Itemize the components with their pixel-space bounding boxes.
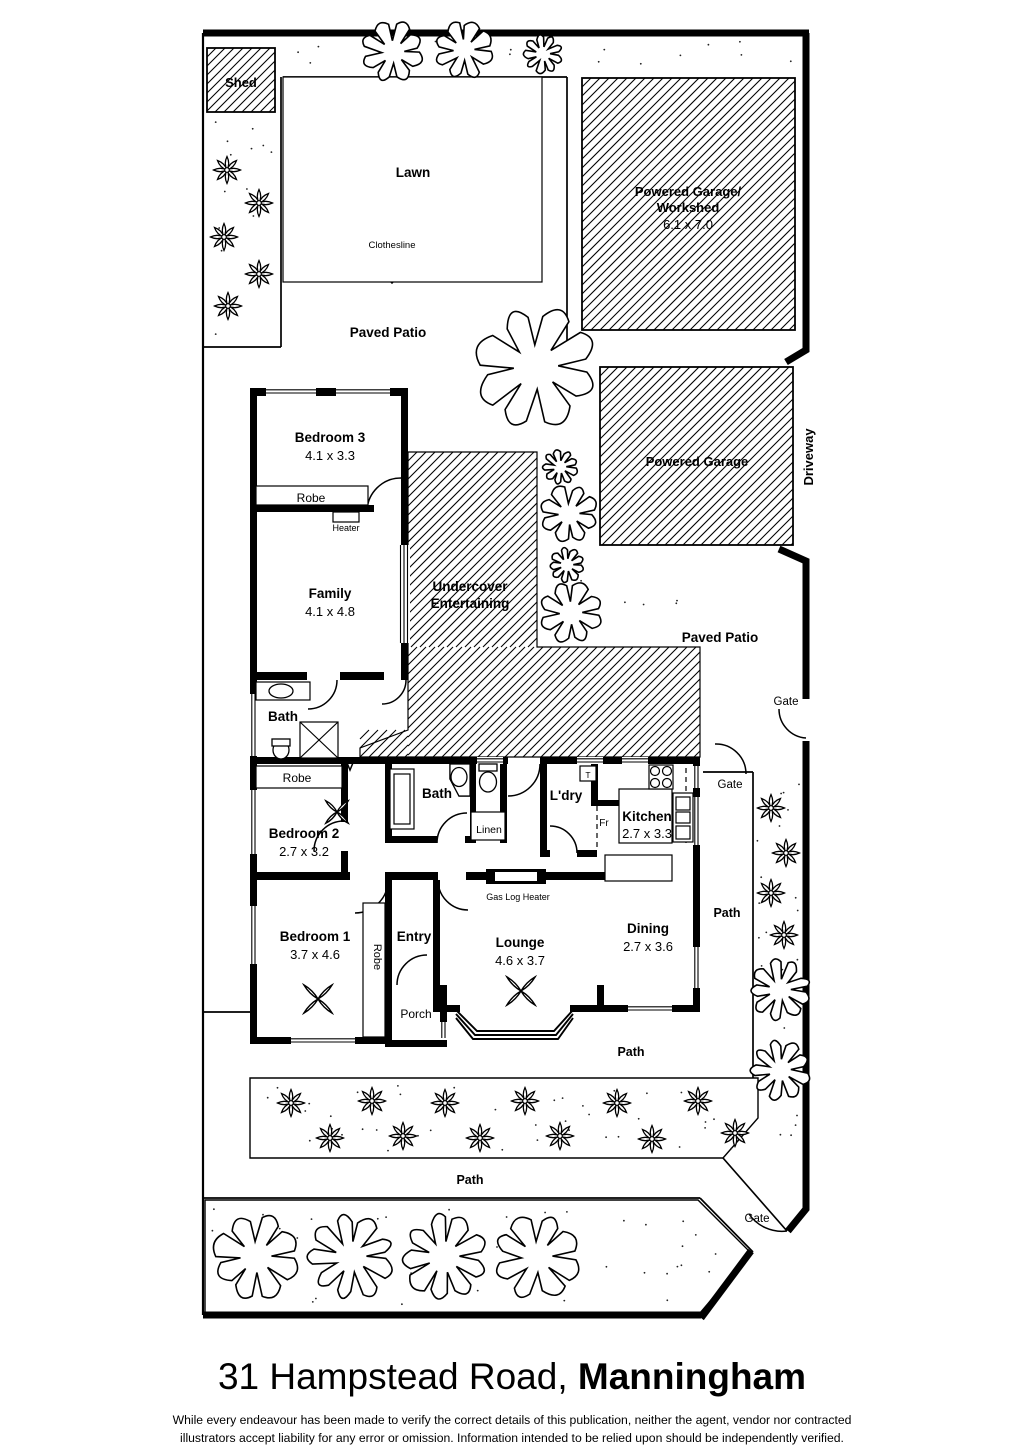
label-bedroom1-dims: 3.7 x 4.6 [290,947,340,962]
disclaimer-line1: While every endeavour has been made to v… [173,1413,852,1427]
label-bedroom3-name: Bedroom 3 [295,430,366,445]
label-robe-bed3: Robe [297,491,326,505]
flower-icon [758,795,785,822]
flower-icon [467,1125,494,1152]
flower-icon [771,922,798,949]
label-path-bottom: Path [456,1173,483,1187]
flower-icon [215,293,242,320]
floor-plan-page: ShedLawnClotheslinePowered Garage/Worksh… [0,0,1024,1448]
label-entry: Entry [397,929,432,944]
label-bedroom1-name: Bedroom 1 [280,929,351,944]
label-heater: Heater [332,523,359,533]
flower-icon [246,190,273,217]
flower-icon [547,1123,574,1150]
flower-icon [211,224,238,251]
label-kitchen-name: Kitchen [622,809,672,824]
label-family-name: Family [309,586,352,601]
label-gate-right-top: Gate [774,696,799,708]
flower-icon [722,1120,749,1147]
label-workshed-dims: 6.1 x 7.0 [663,217,713,232]
label-lounge-name: Lounge [496,935,545,950]
flower-icon [512,1088,539,1115]
label-driveway: Driveway [801,428,816,486]
label-workshed-line2: Workshed [657,200,720,215]
flower-icon [214,157,241,184]
label-family-dims: 4.1 x 4.8 [305,604,355,619]
label-lawn: Lawn [396,165,431,180]
flower-icon [390,1123,417,1150]
label-bath-rear: Bath [268,709,298,724]
label-gate-right-mid: Gate [718,779,743,791]
disclaimer-line2: illustrators accept liability for any er… [180,1431,844,1445]
label-bedroom2-name: Bedroom 2 [269,826,340,841]
label-bedroom2-dims: 2.7 x 3.2 [279,844,329,859]
label-bedroom3-dims: 4.1 x 3.3 [305,448,355,463]
label-porch: Porch [400,1007,431,1021]
flower-icon [639,1126,666,1153]
flower-icon [359,1088,386,1115]
flower-icon [432,1090,459,1117]
label-dining-name: Dining [627,921,669,936]
label-undercover-line1: Undercover [432,579,508,594]
address-title: 31 Hampstead Road, Manningham [218,1356,806,1397]
label-paved-patio-right: Paved Patio [682,630,759,645]
label-kitchen-dims: 2.7 x 3.3 [622,826,672,841]
flower-icon [758,880,785,907]
label-paved-patio-top: Paved Patio [350,325,427,340]
label-lounge-dims: 4.6 x 3.7 [495,953,545,968]
label-shed: Shed [225,75,257,90]
label-bath-main: Bath [422,786,452,801]
flower-icon [773,840,800,867]
label-undercover-line2: Entertaining [431,596,510,611]
label-dining-dims: 2.7 x 3.6 [623,939,673,954]
flower-icon [278,1090,305,1117]
label-gate-bottom: Gate [745,1213,770,1225]
label-path-right: Path [713,906,740,920]
label-linen: Linen [476,824,502,836]
label-robe-bed2: Robe [283,771,312,785]
label-path-mid: Path [617,1045,644,1059]
label-workshed-line1: Powered Garage/ [635,184,742,199]
flower-icon [317,1125,344,1152]
label-robe-bed1: Robe [371,944,383,970]
label-trough: T [585,770,590,780]
tree-icon [550,548,583,583]
flower-icon [685,1088,712,1115]
label-garage: Powered Garage [646,454,749,469]
label-fridge: Fr [599,818,609,829]
label-gas-log-heater: Gas Log Heater [486,892,550,902]
label-clothesline: Clothesline [369,240,416,251]
flower-icon [604,1090,631,1117]
flower-icon [246,261,273,288]
address-suburb: Manningham [578,1356,806,1397]
address-street: 31 Hampstead Road, [218,1356,578,1397]
label-laundry: L'dry [550,788,583,803]
floor-plan: ShedLawnClotheslinePowered Garage/Worksh… [0,0,1024,1448]
